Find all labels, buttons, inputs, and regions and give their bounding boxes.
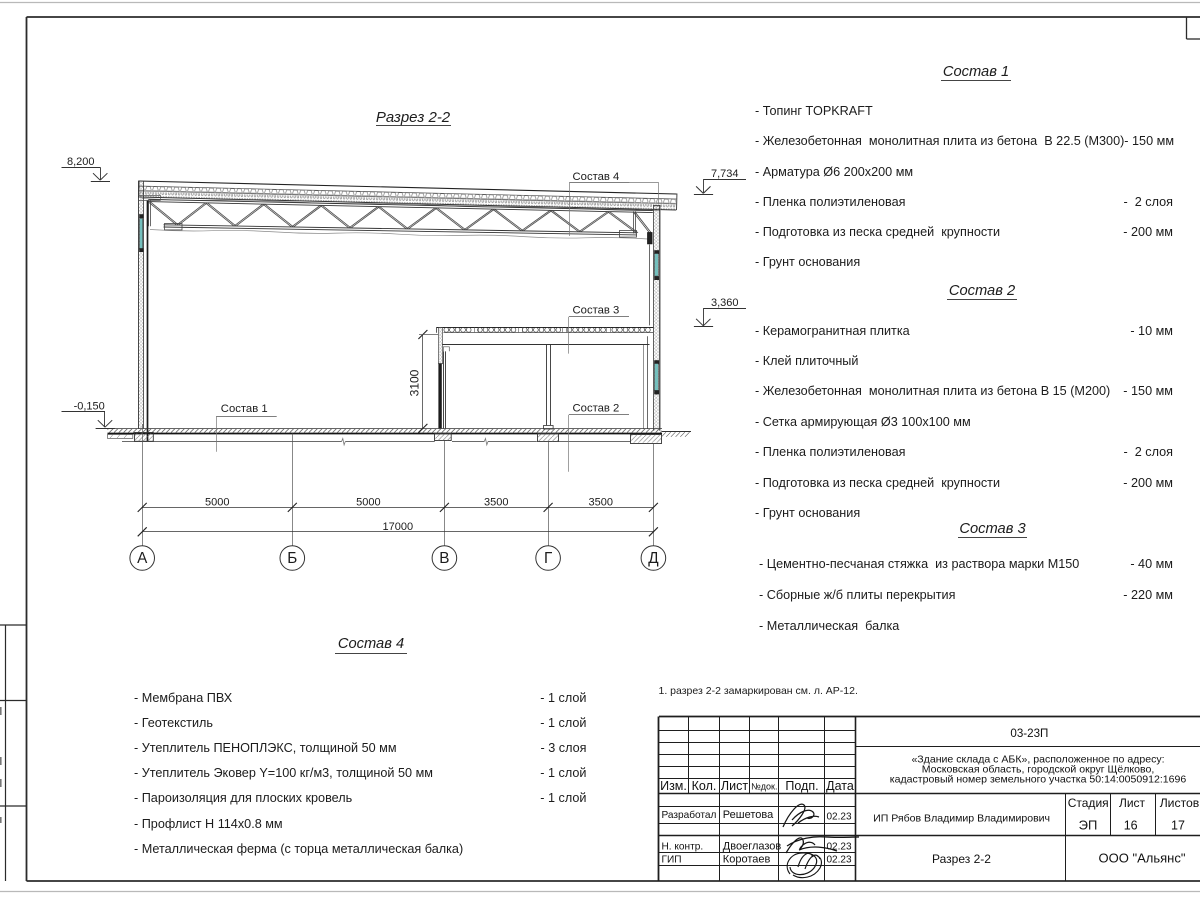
svg-text:Разрез 2-2: Разрез 2-2 [932,852,991,866]
svg-text:17: 17 [1171,818,1185,832]
svg-text:Разработал: Разработал [662,809,717,821]
svg-text:5000: 5000 [356,497,380,509]
svg-text:Кол.: Кол. [692,779,717,793]
svg-text:Состав 4: Состав 4 [573,171,620,183]
svg-text:В: В [439,550,449,567]
svg-text:ГИП: ГИП [662,854,682,865]
svg-text:ИП Рябов Владимир Владимирович: ИП Рябов Владимир Владимирович [873,813,1050,825]
svg-text:Состав 3: Состав 3 [573,305,620,317]
svg-text:Н. контр.: Н. контр. [662,841,704,852]
svg-text:Изм.: Изм. [660,779,687,793]
svg-text:кадастровый номер земельного у: кадастровый номер земельного участка 50:… [890,774,1187,786]
svg-text:Лист: Лист [1119,796,1146,810]
svg-text:ООО "Альянс": ООО "Альянс" [1099,851,1186,866]
svg-text:3500: 3500 [589,497,613,509]
svg-text:Лист: Лист [721,779,748,793]
svg-text:№док.: №док. [751,781,777,791]
svg-text:Стадия: Стадия [1068,796,1109,810]
svg-text:Д: Д [648,550,659,567]
svg-text:Б: Б [287,550,297,567]
svg-text:02.23: 02.23 [826,811,851,822]
svg-text:Состав 1: Состав 1 [221,403,268,415]
svg-text:5000: 5000 [205,497,229,509]
svg-text:Г: Г [544,550,552,567]
svg-text:Коротаев: Коротаев [723,853,771,865]
svg-text:3,360: 3,360 [711,297,739,309]
svg-text:Двоеглазов: Двоеглазов [723,840,782,852]
svg-text:Подп.: Подп. [785,779,818,793]
svg-text:3500: 3500 [484,497,508,509]
svg-text:-0,150: -0,150 [74,400,105,412]
svg-text:02.23: 02.23 [826,855,851,866]
svg-text:ЭП: ЭП [1079,817,1098,832]
svg-text:3100: 3100 [408,369,422,396]
svg-text:16: 16 [1124,818,1138,832]
svg-text:17000: 17000 [383,521,414,533]
svg-text:7,734: 7,734 [711,168,739,180]
svg-text:Листов: Листов [1160,796,1200,810]
svg-text:Состав 2: Состав 2 [573,403,620,415]
svg-text:Решетова: Решетова [723,809,774,821]
svg-text:8,200: 8,200 [67,156,95,168]
svg-text:Дата: Дата [826,779,854,793]
svg-text:02.23: 02.23 [826,842,851,853]
svg-text:А: А [137,550,148,567]
svg-text:03-23П: 03-23П [1010,727,1048,740]
